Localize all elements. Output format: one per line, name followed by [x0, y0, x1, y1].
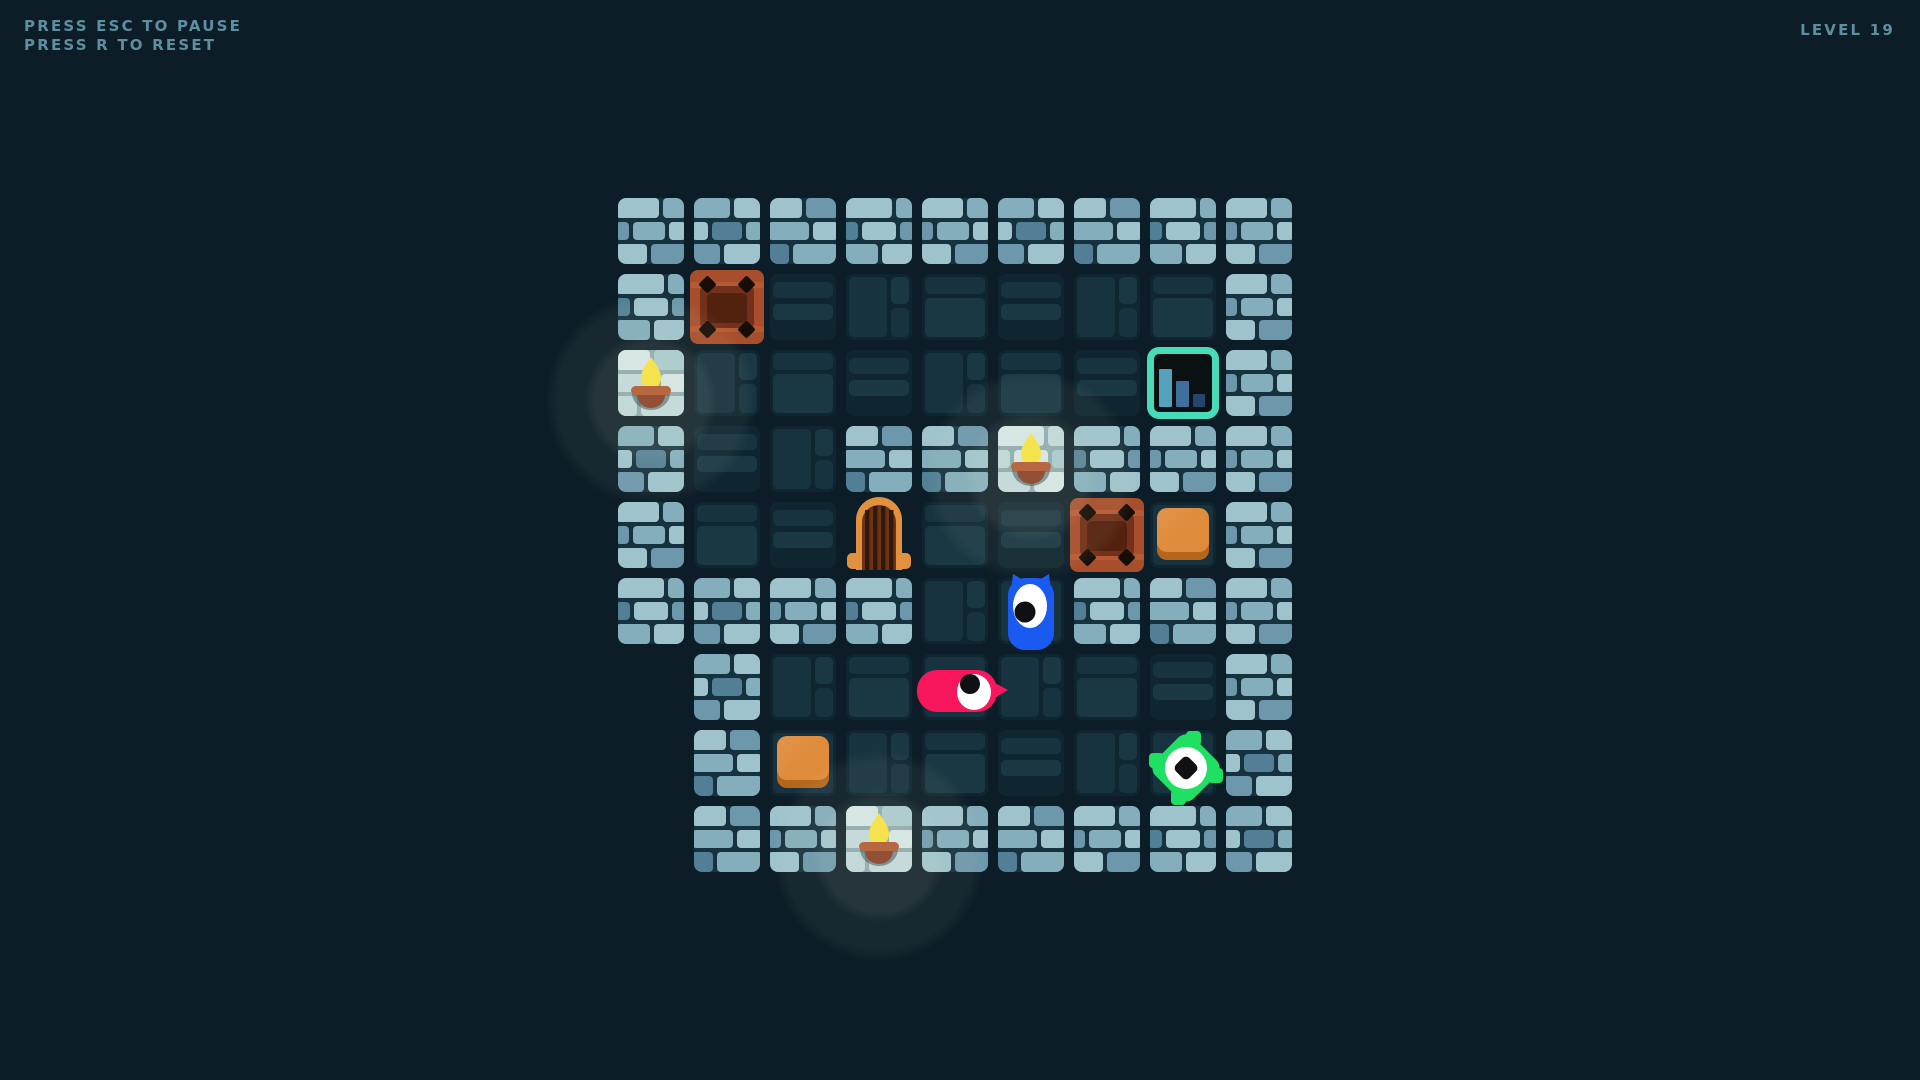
push-block — [777, 736, 829, 788]
floor-tile — [1074, 654, 1140, 720]
brick — [1271, 426, 1292, 446]
brick — [1204, 830, 1216, 848]
brick — [694, 776, 713, 796]
brick — [846, 602, 858, 620]
brick — [846, 624, 878, 644]
brick — [770, 222, 809, 240]
floor-tile — [998, 730, 1064, 796]
brick — [1226, 472, 1255, 492]
brick — [694, 852, 713, 872]
floor-tile — [1074, 350, 1140, 416]
brick — [821, 830, 836, 848]
floor-brick — [849, 277, 887, 337]
brick — [1110, 472, 1140, 492]
brick-row — [1150, 602, 1216, 620]
brick-row — [694, 852, 760, 872]
brick — [1074, 198, 1106, 218]
brick — [1226, 776, 1252, 796]
brick — [1226, 222, 1237, 240]
brick — [746, 602, 760, 620]
floor-brick — [925, 581, 963, 641]
brick — [1259, 244, 1292, 264]
brick — [712, 602, 742, 620]
wall-tile — [1074, 578, 1140, 644]
brick — [770, 806, 811, 826]
brick — [1150, 198, 1196, 218]
brick — [1241, 678, 1273, 696]
brick — [1074, 578, 1120, 598]
brick — [803, 624, 836, 644]
brick — [618, 426, 654, 446]
brick — [694, 222, 708, 240]
brick — [1259, 548, 1292, 568]
brick — [712, 678, 742, 696]
floor-brick — [773, 532, 833, 548]
brick — [1226, 700, 1255, 720]
brick — [1204, 222, 1216, 240]
brick-row — [922, 806, 988, 826]
brick — [618, 198, 659, 218]
floor-tile — [846, 730, 912, 796]
brick — [1074, 244, 1093, 264]
brick-row — [694, 654, 760, 674]
brick-row — [1226, 320, 1292, 340]
wall-tile — [1226, 274, 1292, 340]
brick — [1259, 396, 1292, 416]
brick — [1226, 320, 1255, 340]
brick-row — [694, 578, 760, 598]
brick — [1277, 222, 1292, 240]
floor-tile — [694, 502, 760, 568]
brick-row — [1226, 730, 1292, 750]
floor-brick — [815, 657, 833, 684]
wall-tile — [694, 730, 760, 796]
brick — [770, 624, 799, 644]
brick — [1226, 396, 1255, 416]
exit-portal — [1147, 347, 1219, 419]
floor-brick — [1001, 304, 1061, 320]
brick — [998, 198, 1034, 218]
brick — [900, 222, 912, 240]
brick-row — [922, 830, 988, 848]
brick-row — [922, 450, 988, 468]
brick — [1277, 678, 1292, 696]
portal-bar — [1176, 381, 1189, 407]
crate — [690, 270, 764, 344]
floor-brick — [967, 612, 985, 641]
brick — [1278, 754, 1292, 772]
brick — [998, 852, 1017, 872]
floor-tile — [846, 350, 912, 416]
floor-brick — [925, 353, 963, 413]
brick — [770, 852, 799, 872]
brick — [1226, 526, 1237, 544]
floor-tile — [770, 350, 836, 416]
floor-tile — [770, 502, 836, 568]
crate — [1070, 498, 1144, 572]
wall-tile — [694, 198, 760, 264]
brick-row — [1226, 654, 1292, 674]
push-block — [1157, 508, 1209, 560]
brick — [1150, 222, 1162, 240]
brick — [1266, 806, 1292, 826]
brick — [694, 578, 730, 598]
brick — [821, 602, 836, 620]
brick-row — [846, 578, 912, 598]
brick — [1259, 320, 1292, 340]
brick — [1119, 806, 1140, 826]
brick — [1226, 374, 1237, 392]
brick — [1241, 602, 1273, 620]
brick — [922, 806, 963, 826]
brick — [618, 222, 629, 240]
brick-row — [618, 578, 684, 598]
brick — [1226, 548, 1255, 568]
brick-row — [846, 198, 912, 218]
floor-brick — [773, 657, 811, 717]
brick — [846, 578, 892, 598]
brick-row — [694, 754, 760, 772]
brick — [737, 830, 760, 848]
brick — [998, 222, 1012, 240]
brick — [1150, 852, 1182, 872]
wall-tile — [1150, 578, 1216, 644]
floor-brick — [891, 308, 909, 337]
brick — [724, 624, 761, 644]
brick — [1166, 830, 1200, 848]
brick-row — [618, 602, 684, 620]
brick — [1034, 806, 1064, 826]
brick-row — [1226, 578, 1292, 598]
floor-tile — [1074, 274, 1140, 340]
brick — [1150, 426, 1191, 446]
floor-brick — [1001, 353, 1061, 370]
brick — [717, 852, 760, 872]
wall-tile — [846, 578, 912, 644]
brick — [712, 222, 742, 240]
floor-brick — [1001, 282, 1061, 298]
floor-tile — [998, 274, 1064, 340]
brick — [973, 830, 988, 848]
brick — [815, 806, 836, 826]
brick-row — [1074, 806, 1140, 826]
brick — [1166, 222, 1200, 240]
floor-brick — [849, 678, 909, 717]
brick — [998, 806, 1030, 826]
brick-row — [1074, 830, 1140, 848]
brick-row — [998, 244, 1064, 264]
brick — [793, 244, 836, 264]
floor-brick — [925, 505, 985, 522]
brick — [1226, 244, 1255, 264]
brick — [896, 198, 912, 218]
floor-brick — [1153, 277, 1213, 294]
brick — [1226, 830, 1240, 848]
floor-brick — [1043, 688, 1061, 717]
brick — [1124, 426, 1140, 446]
brick-row — [618, 198, 684, 218]
brick — [1074, 602, 1086, 620]
brick — [746, 222, 760, 240]
floor-brick — [697, 526, 757, 565]
floor-tile — [846, 654, 912, 720]
brick — [973, 222, 988, 240]
floor-brick — [1153, 662, 1213, 678]
brick — [882, 426, 912, 446]
brick — [1074, 450, 1086, 468]
brick-row — [694, 806, 760, 826]
brick — [770, 830, 781, 848]
brick — [1271, 654, 1292, 674]
brick — [618, 274, 664, 294]
brick-row — [1226, 374, 1292, 392]
brick-row — [770, 198, 836, 218]
brick — [998, 244, 1024, 264]
brick — [1150, 624, 1169, 644]
brick — [672, 298, 684, 316]
brick — [1090, 602, 1124, 620]
floor-brick — [849, 380, 909, 396]
brick — [618, 298, 630, 316]
floor-brick — [891, 764, 909, 793]
brick — [737, 754, 760, 772]
floor-brick — [773, 282, 833, 298]
brick — [1150, 578, 1182, 598]
brick-row — [1226, 700, 1292, 720]
brick-row — [1226, 450, 1292, 468]
brick — [1183, 472, 1216, 492]
wall-tile — [618, 274, 684, 340]
brick — [730, 730, 760, 750]
brick — [1277, 602, 1292, 620]
brick-row — [922, 852, 988, 872]
brick-row — [618, 502, 684, 522]
brick — [922, 450, 961, 468]
floor-brick — [773, 353, 833, 370]
wall-tile — [618, 502, 684, 568]
floor-brick — [697, 505, 757, 522]
floor-tile — [922, 350, 988, 416]
brick — [1277, 298, 1292, 316]
brick — [846, 426, 878, 446]
brick-row — [1074, 578, 1140, 598]
brick-row — [1150, 852, 1216, 872]
floor-tile — [922, 578, 988, 644]
wall-tile — [618, 578, 684, 644]
brick-row — [1074, 624, 1140, 644]
brick — [1074, 830, 1085, 848]
brick — [633, 222, 665, 240]
wall-tile — [846, 426, 912, 492]
brick — [1074, 426, 1120, 446]
brick — [1128, 450, 1140, 468]
floor-brick — [925, 733, 985, 750]
brick — [694, 678, 708, 696]
brick — [846, 450, 885, 468]
floor-brick — [1119, 277, 1137, 304]
brick-row — [694, 198, 760, 218]
wall-tile — [1226, 198, 1292, 264]
brick — [922, 830, 933, 848]
brick — [770, 198, 802, 218]
brick-row — [694, 730, 760, 750]
brick — [896, 578, 912, 598]
floor-brick — [1077, 380, 1137, 396]
brick — [1256, 776, 1293, 796]
brick — [694, 754, 733, 772]
wall-tile — [1074, 426, 1140, 492]
pause-hint: PRESS ESC TO PAUSE — [24, 17, 242, 36]
brick — [889, 450, 912, 468]
floor-tile — [998, 502, 1064, 568]
brick — [1278, 830, 1292, 848]
floor-brick — [925, 298, 985, 337]
floor-tile — [694, 426, 760, 492]
brick-row — [1226, 526, 1292, 544]
floor-brick — [773, 510, 833, 526]
floor-brick — [1001, 738, 1061, 754]
brick-row — [770, 624, 836, 644]
brick — [1277, 374, 1292, 392]
brick — [1259, 624, 1292, 644]
brick — [672, 602, 684, 620]
brick-row — [1226, 502, 1292, 522]
brick-row — [846, 426, 912, 446]
game-screen: PRESS ESC TO PAUSE PRESS R TO RESET LEVE… — [0, 0, 1920, 1080]
brick — [770, 602, 781, 620]
brick-row — [770, 806, 836, 826]
brick — [882, 624, 912, 644]
wall-tile — [694, 806, 760, 872]
brick — [663, 198, 684, 218]
brick — [1271, 578, 1292, 598]
floor-tile — [770, 274, 836, 340]
brick-row — [770, 244, 836, 264]
brick — [694, 730, 726, 750]
brick-row — [1074, 198, 1140, 218]
brick — [1117, 222, 1140, 240]
brick — [1150, 602, 1189, 620]
wall-tile — [998, 806, 1064, 872]
brick — [1244, 754, 1274, 772]
brick — [955, 852, 988, 872]
floor-brick — [1077, 358, 1137, 374]
brick-row — [618, 526, 684, 544]
brick-row — [846, 222, 912, 240]
wall-tile — [1074, 198, 1140, 264]
dungeon-door — [846, 494, 912, 570]
brick — [1226, 450, 1237, 468]
brick-row — [694, 624, 760, 644]
brick — [1050, 222, 1064, 240]
brick — [618, 450, 632, 468]
brick — [1128, 602, 1140, 620]
brick — [1200, 806, 1216, 826]
brick — [1201, 450, 1216, 468]
brick — [1150, 244, 1182, 264]
brick-row — [1150, 806, 1216, 826]
floor-brick — [1043, 657, 1061, 684]
brick — [1226, 602, 1237, 620]
floor-brick — [1001, 760, 1061, 776]
brick — [803, 852, 836, 872]
brick — [618, 472, 644, 492]
wall-tile — [922, 426, 988, 492]
brick-row — [1226, 602, 1292, 620]
floor-tile — [922, 502, 988, 568]
brick-row — [1074, 244, 1140, 264]
floor-tile — [998, 350, 1064, 416]
brick — [922, 198, 963, 218]
brick-row — [922, 472, 988, 492]
brick-row — [998, 830, 1064, 848]
brick — [694, 624, 720, 644]
brick — [694, 602, 708, 620]
floor-brick — [1119, 764, 1137, 793]
floor-brick — [739, 384, 757, 413]
portal-bar — [1193, 394, 1205, 407]
blue-monster — [1004, 572, 1058, 652]
floor-brick — [697, 353, 735, 413]
brick-row — [618, 244, 684, 264]
brick — [1226, 274, 1267, 294]
floor-brick — [891, 277, 909, 304]
brick-row — [1074, 450, 1140, 468]
floor-brick — [967, 384, 985, 413]
brick — [922, 472, 941, 492]
brick — [636, 450, 666, 468]
floor-brick — [1001, 532, 1061, 548]
brick-row — [1226, 830, 1292, 848]
brick — [694, 654, 730, 674]
floor-brick — [1077, 678, 1137, 717]
torch-icon — [618, 350, 684, 416]
brick — [618, 548, 647, 568]
brick — [1074, 222, 1113, 240]
floor-tile — [1074, 730, 1140, 796]
brick — [1271, 350, 1292, 370]
brick-row — [1226, 806, 1292, 826]
brick-row — [922, 222, 988, 240]
brick — [1226, 426, 1267, 446]
brick — [1200, 198, 1216, 218]
brick-row — [1150, 624, 1216, 644]
brick — [724, 700, 761, 720]
brick-row — [998, 806, 1064, 826]
brick — [1241, 526, 1273, 544]
brick — [1110, 198, 1140, 218]
floor-brick — [815, 429, 833, 456]
brick — [1074, 806, 1115, 826]
wall-tile — [1226, 426, 1292, 492]
brick-row — [1150, 222, 1216, 240]
brick — [734, 654, 760, 674]
reset-hint: PRESS R TO RESET — [24, 36, 242, 55]
brick — [654, 320, 684, 340]
brick-row — [1226, 396, 1292, 416]
brick — [846, 222, 858, 240]
brick — [1226, 730, 1262, 750]
brick-row — [770, 578, 836, 598]
wall-tile — [1226, 350, 1292, 416]
floor-tile — [846, 274, 912, 340]
brick-row — [1226, 298, 1292, 316]
brick — [634, 602, 668, 620]
floor-brick — [815, 688, 833, 717]
brick — [998, 830, 1037, 848]
wall-tile — [618, 198, 684, 264]
brick-row — [618, 548, 684, 568]
